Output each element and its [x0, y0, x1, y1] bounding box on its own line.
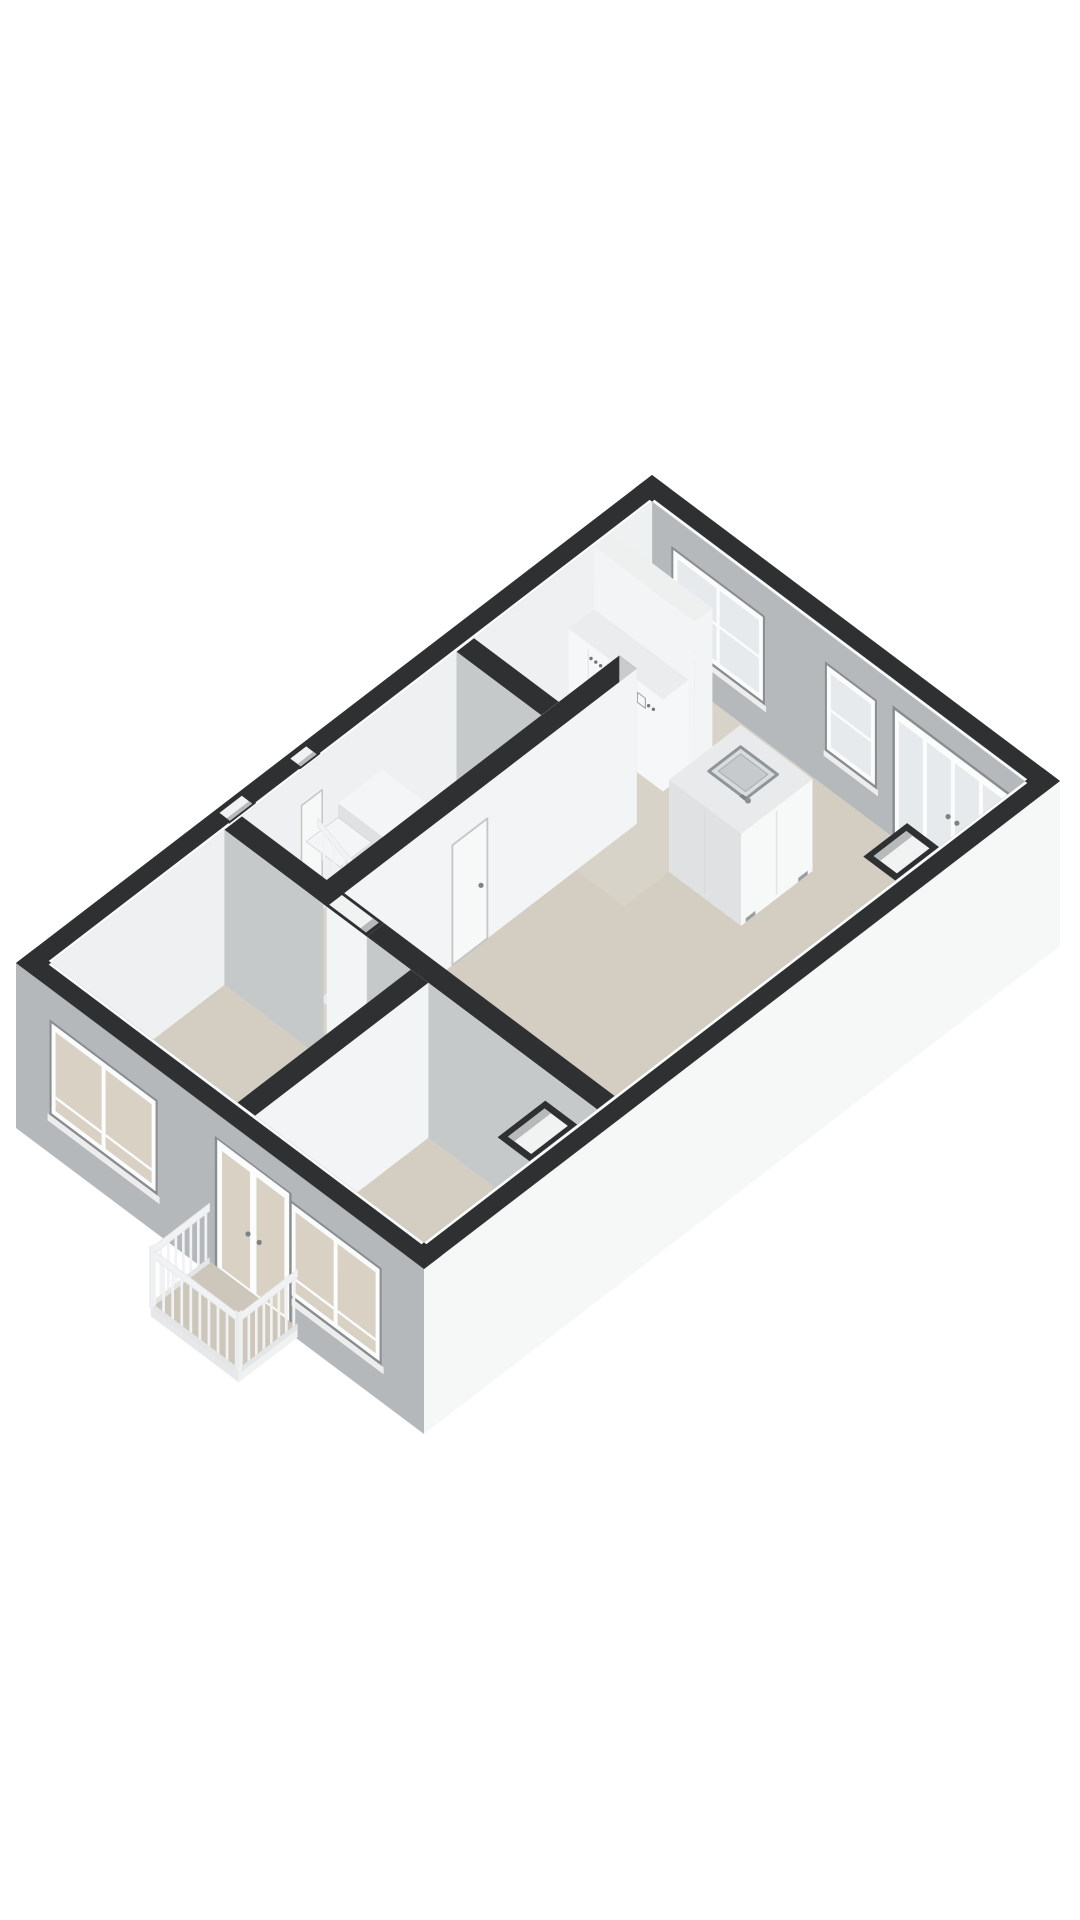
- island-seam: [776, 810, 778, 895]
- stair-baluster: [322, 832, 324, 862]
- cooktop-knob: [589, 657, 592, 660]
- balcony-balustrade-north-slat: [197, 1219, 200, 1267]
- balcony-balustrade-outer-slat: [171, 1272, 174, 1320]
- french-door-handle: [954, 821, 959, 826]
- balcony-balustrade-south-slat: [278, 1291, 281, 1339]
- french-door-handle: [946, 814, 951, 819]
- partition-door-leaf: [452, 818, 487, 965]
- balcony-balustrade-south-slat: [263, 1302, 266, 1350]
- balcony-balustrade-north-slat: [175, 1236, 178, 1284]
- door-handle: [478, 883, 483, 888]
- balcony-balustrade-outer-slat: [208, 1299, 211, 1347]
- balcony-balustrade-outer-slat: [162, 1265, 165, 1313]
- balcony-balustrade-outer-slat: [199, 1292, 202, 1340]
- island-seam: [704, 810, 705, 895]
- balcony-balustrade-south-slat: [270, 1296, 273, 1344]
- balcony-balustrade-south-slat: [255, 1308, 258, 1356]
- balcony-balustrade-south-slat: [293, 1279, 296, 1327]
- control-dot: [652, 708, 655, 711]
- balcony-balustrade-outer-slat: [180, 1279, 183, 1327]
- balcony-door-handle: [257, 1240, 262, 1245]
- floorplan-canvas: [0, 0, 1080, 1920]
- cooktop-knob: [594, 660, 597, 663]
- cooktop-knob: [599, 664, 602, 667]
- balcony-corner-post: [239, 1310, 242, 1374]
- balcony-balustrade-outer-slat: [226, 1313, 229, 1361]
- stair-baluster: [333, 844, 335, 874]
- balcony-balustrade-north-slat: [190, 1225, 193, 1273]
- sink-faucet-base: [745, 798, 751, 804]
- control-dot: [647, 704, 650, 707]
- balcony-balustrade-outer-slat: [217, 1306, 220, 1354]
- balcony-balustrade-north-slat: [205, 1213, 208, 1261]
- balcony-corner-post: [151, 1244, 154, 1308]
- balcony-balustrade-south-slat: [285, 1285, 288, 1333]
- balcony-door-handle: [245, 1231, 250, 1236]
- balcony-doors-post: [250, 1164, 256, 1299]
- balcony-balustrade-north-slat: [182, 1230, 185, 1278]
- balcony-balustrade-south-slat: [248, 1314, 251, 1362]
- balcony-balustrade-outer-slat: [189, 1285, 192, 1333]
- balcony-door-glass: [222, 1151, 250, 1289]
- floorplan-3d-render: [0, 0, 1080, 1920]
